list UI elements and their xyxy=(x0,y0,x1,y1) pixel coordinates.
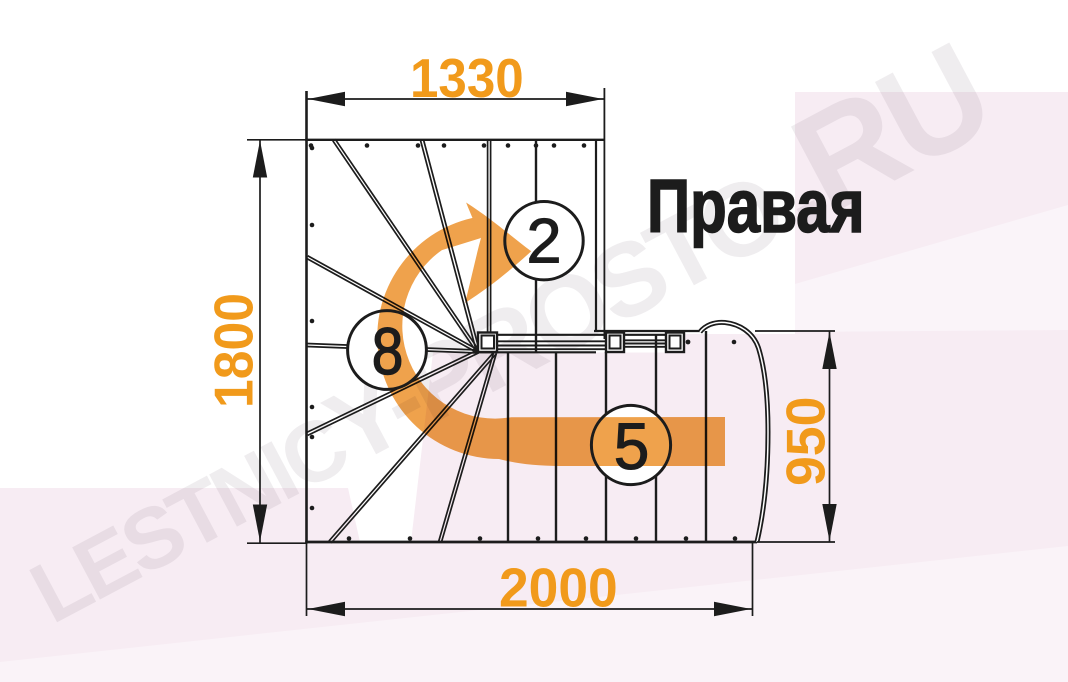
svg-text:950: 950 xyxy=(775,397,837,486)
svg-text:5: 5 xyxy=(614,409,650,483)
svg-text:1800: 1800 xyxy=(204,293,265,408)
svg-text:2000: 2000 xyxy=(499,558,618,619)
svg-text:8: 8 xyxy=(372,315,404,389)
svg-text:2: 2 xyxy=(526,207,561,277)
svg-text:1330: 1330 xyxy=(410,48,524,109)
svg-text:Правая: Правая xyxy=(647,166,865,249)
